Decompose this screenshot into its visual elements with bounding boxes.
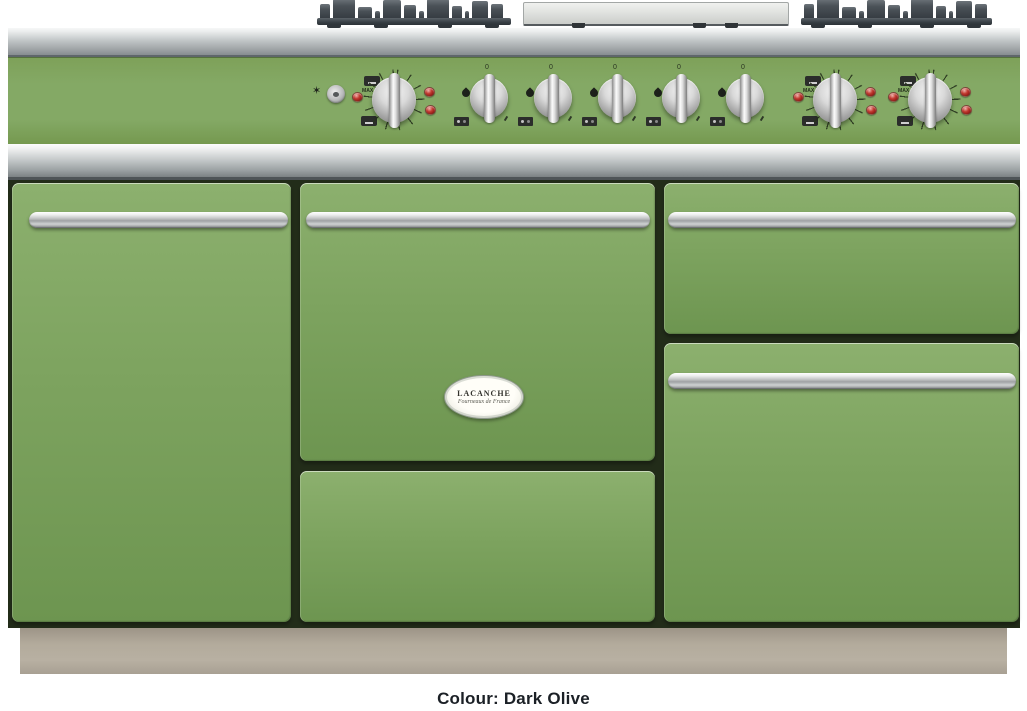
grate-finger: [333, 0, 355, 19]
burner-control-knob: [726, 78, 764, 118]
right-oven-door: [664, 183, 1019, 334]
door-handle: [29, 212, 288, 228]
brand-name: LACANCHE: [457, 389, 511, 398]
hob-position-icon: [582, 117, 597, 126]
burner-grate-right-icon: [799, 0, 994, 28]
brand-script: Fourneaux de France: [458, 399, 510, 405]
grate-finger: [911, 0, 933, 19]
oven-indicator-light: [961, 105, 972, 115]
door-handle: [668, 373, 1016, 389]
worktop-front-trim: [8, 144, 1020, 180]
range-cooker-product-image: ✶ MAXMAXMAX00000 LACANCHE Fourneaux de F…: [0, 0, 1027, 711]
grate-finger: [383, 0, 401, 19]
grate-finger: [888, 5, 900, 19]
center-oven-door: LACANCHE Fourneaux de France: [300, 183, 655, 461]
zero-marking: 0: [485, 64, 489, 71]
grate-finger: [817, 0, 839, 19]
oven-temperature-knob: [372, 77, 416, 123]
burner-control-knob: [534, 78, 572, 118]
burner-control-knob: [470, 78, 508, 118]
door-handle: [668, 212, 1016, 228]
oven-temperature-knob: [908, 77, 952, 123]
zero-marking: 0: [549, 64, 553, 71]
oven-temperature-knob: [813, 77, 857, 123]
grate-finger: [472, 1, 488, 19]
burner-control-knob: [662, 78, 700, 118]
cooktop-front-trim: [8, 28, 1020, 57]
colour-caption: Colour: Dark Olive: [0, 689, 1027, 709]
ignition-button: [327, 85, 345, 103]
plinth: [20, 628, 1007, 674]
center-bottom-drawer: [300, 471, 655, 622]
grate-finger: [491, 4, 503, 19]
spark-ignition-icon: ✶: [312, 86, 321, 97]
zero-marking: 0: [677, 64, 681, 71]
oven-indicator-light: [865, 87, 876, 97]
burner-control-knob: [598, 78, 636, 118]
left-oven-door: [12, 183, 291, 622]
oven-indicator-light: [425, 105, 436, 115]
grate-base-bar: [801, 18, 992, 25]
oven-indicator-light: [866, 105, 877, 115]
brand-badge: LACANCHE Fourneaux de France: [444, 375, 524, 419]
oven-indicator-light: [424, 87, 435, 97]
grate-finger: [804, 4, 814, 19]
zero-marking: 0: [741, 64, 745, 71]
tick-marking: [696, 116, 700, 121]
grate-finger: [975, 4, 987, 19]
door-handle: [306, 212, 650, 228]
grate-finger: [867, 0, 885, 19]
plancha-plate: [523, 2, 789, 26]
oven-front: LACANCHE Fourneaux de France: [8, 180, 1020, 628]
right-bottom-door: [664, 343, 1019, 622]
tick-marking: [632, 116, 636, 121]
zero-marking: 0: [613, 64, 617, 71]
oven-indicator-light: [960, 87, 971, 97]
hob-position-icon: [710, 117, 725, 126]
tick-marking: [760, 116, 764, 121]
hob-position-icon: [518, 117, 533, 126]
grate-finger: [320, 4, 330, 19]
tick-marking: [568, 116, 572, 121]
hob-position-icon: [454, 117, 469, 126]
burner-grate-left-icon: [315, 0, 513, 28]
hob-position-icon: [646, 117, 661, 126]
grate-base-bar: [317, 18, 511, 25]
grate-finger: [956, 1, 972, 19]
tick-marking: [504, 116, 508, 121]
grate-finger: [427, 0, 449, 19]
grate-finger: [404, 5, 416, 19]
control-panel: ✶ MAXMAXMAX00000: [8, 57, 1020, 144]
